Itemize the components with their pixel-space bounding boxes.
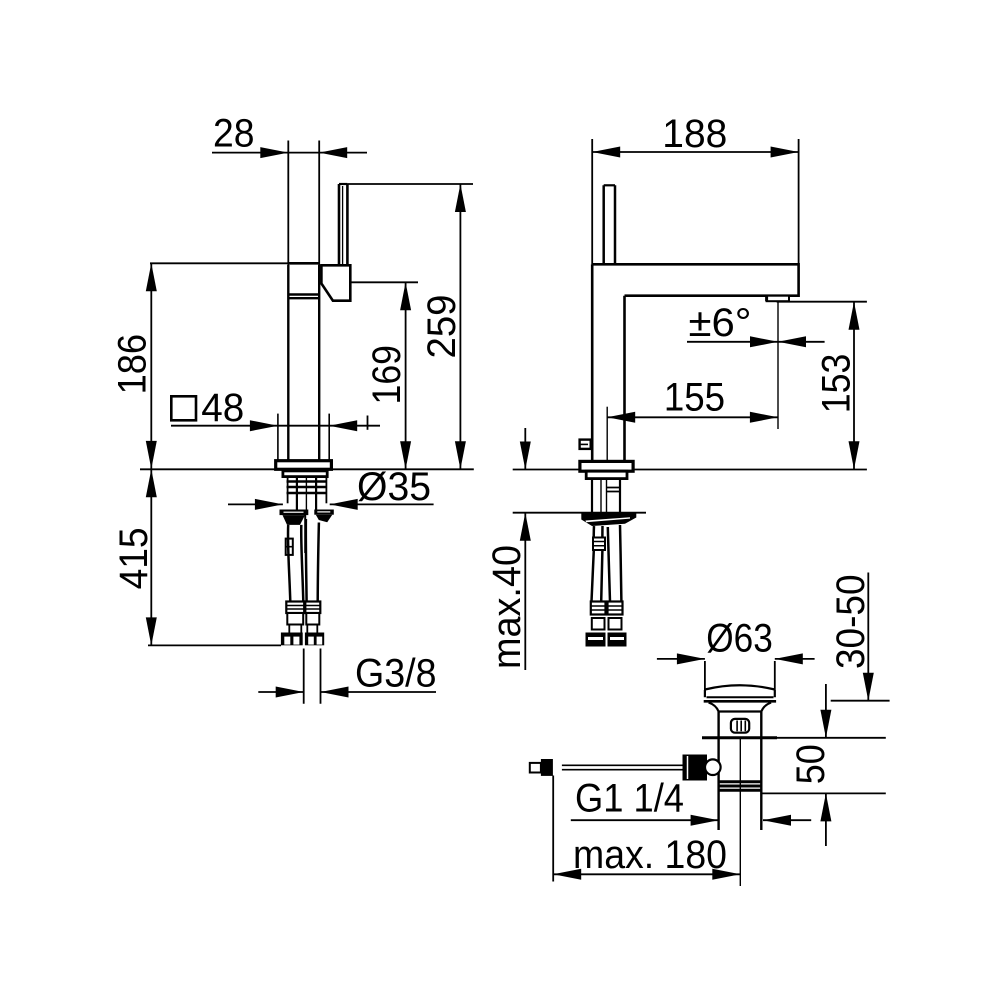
svg-text:50: 50 <box>789 744 833 784</box>
svg-text:G1 1/4: G1 1/4 <box>575 777 684 821</box>
svg-text:155: 155 <box>664 376 725 420</box>
svg-text:±6°: ±6° <box>689 301 752 345</box>
svg-text:30-50: 30-50 <box>829 575 873 670</box>
svg-text:186: 186 <box>111 334 155 395</box>
svg-text:169: 169 <box>365 345 409 405</box>
svg-text:Ø63: Ø63 <box>706 616 773 660</box>
svg-text:259: 259 <box>420 295 464 359</box>
svg-text:max. 180: max. 180 <box>573 833 727 877</box>
svg-text:188: 188 <box>662 112 727 156</box>
svg-text:Ø35: Ø35 <box>357 465 431 509</box>
svg-text:415: 415 <box>112 527 156 589</box>
svg-text:28: 28 <box>213 112 255 156</box>
svg-text:153: 153 <box>815 354 859 414</box>
svg-text:G3/8: G3/8 <box>355 651 437 695</box>
svg-text:max.40: max.40 <box>485 545 529 669</box>
svg-text:48: 48 <box>201 386 244 430</box>
